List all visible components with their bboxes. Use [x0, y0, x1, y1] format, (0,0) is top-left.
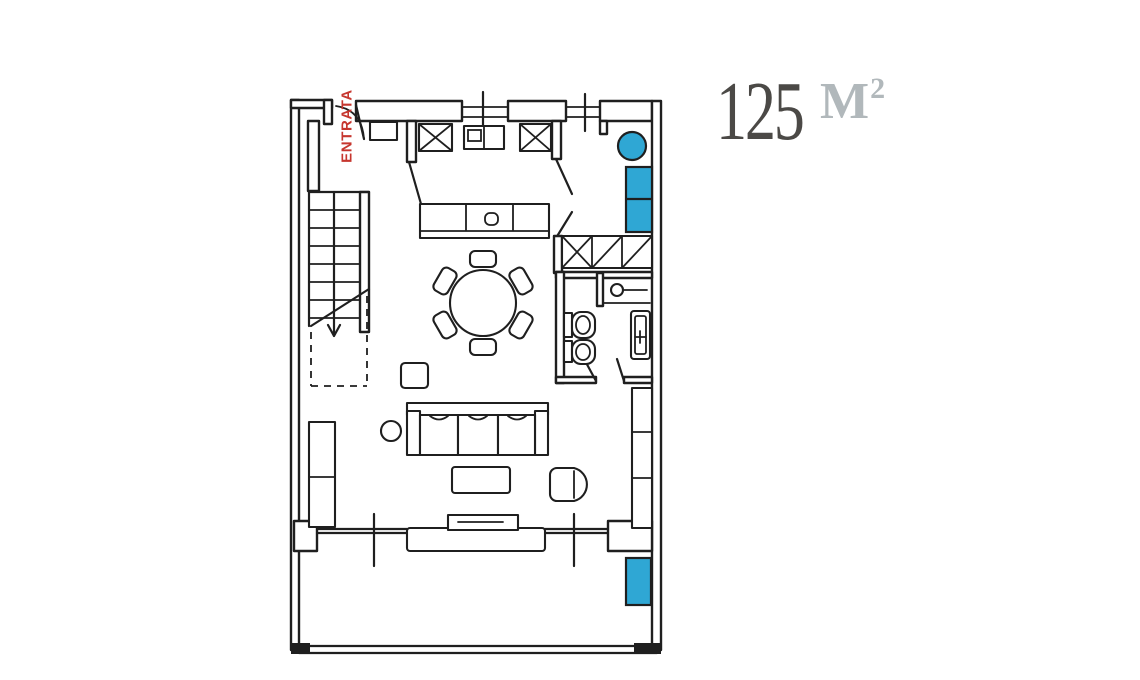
area-value: 125: [716, 70, 803, 154]
wall-entry-stub: [308, 121, 319, 191]
terrace: [291, 558, 661, 654]
wall-dining-wardrobe: [554, 236, 562, 273]
bath-door-jamb: [617, 359, 624, 381]
side-table: [381, 421, 401, 441]
armchair: [550, 468, 587, 501]
wall-top-c-stub: [600, 121, 607, 134]
door-jamb-upper: [556, 159, 572, 194]
pouf: [401, 363, 428, 388]
sofa-back: [407, 403, 548, 415]
living-window-right: [545, 529, 608, 533]
wardrobe: [562, 236, 652, 268]
living-window-left: [317, 529, 407, 533]
wall-bath-bottom-right: [624, 377, 652, 383]
top-right-window: [566, 107, 600, 117]
terrace-corner-left: [291, 643, 310, 654]
terrace-railing: [299, 646, 657, 653]
wall-kitchen-right-stub: [552, 121, 561, 159]
wall-kitchen-left-stub: [407, 121, 416, 162]
wall-kitchen-left-chamfer: [409, 162, 421, 204]
living-room: [309, 388, 652, 551]
dining-table: [450, 270, 516, 336]
area-label: 125 M2: [716, 70, 833, 140]
area-unit: M2: [820, 76, 884, 128]
sofa-seat: [498, 415, 535, 455]
staircase: [309, 192, 369, 386]
dining-chair: [470, 251, 496, 267]
wall-bath-bottom-left: [556, 377, 596, 383]
bath-partition: [597, 273, 603, 306]
floor-plan-drawing: [0, 0, 1140, 680]
wall-top-c: [600, 101, 652, 121]
floor-plan-page: ENTRATA 125 M2: [0, 0, 1140, 680]
left-cabinet: [309, 422, 335, 527]
round-seat-highlight: [618, 132, 646, 160]
wall-top-a: [356, 101, 462, 121]
tv-sideboard: [407, 528, 545, 551]
top-right-room: [618, 132, 652, 232]
terrace-bench-highlight: [626, 558, 651, 605]
terrace-corner-right: [634, 643, 661, 654]
sofa-arm-right: [535, 411, 548, 455]
bidet-tank: [564, 341, 572, 362]
doormat: [370, 122, 397, 140]
wall-left: [291, 100, 299, 650]
dining-set: [401, 251, 534, 388]
bathroom: [564, 273, 650, 364]
door-jamb-lower: [556, 212, 572, 238]
wall-top-left-stub: [324, 100, 332, 124]
area-unit-exponent: 2: [870, 72, 885, 105]
wall-bath-left: [556, 272, 564, 383]
washbasin: [611, 284, 623, 296]
sofa-seat: [420, 415, 458, 455]
entrance-label: ENTRATA: [339, 89, 356, 163]
right-cabinet: [632, 388, 652, 528]
sofa-seat: [458, 415, 498, 455]
dining-chair: [470, 339, 496, 355]
walls: [291, 100, 661, 650]
coffee-table: [452, 467, 510, 493]
kitchen-window: [462, 107, 508, 117]
kitchen: [419, 124, 551, 238]
toilet-tank: [564, 313, 572, 337]
stair-dashed-outline: [311, 296, 367, 386]
wall-top-b: [508, 101, 566, 121]
wall-right: [652, 101, 661, 650]
sofa-arm-left: [407, 411, 420, 455]
